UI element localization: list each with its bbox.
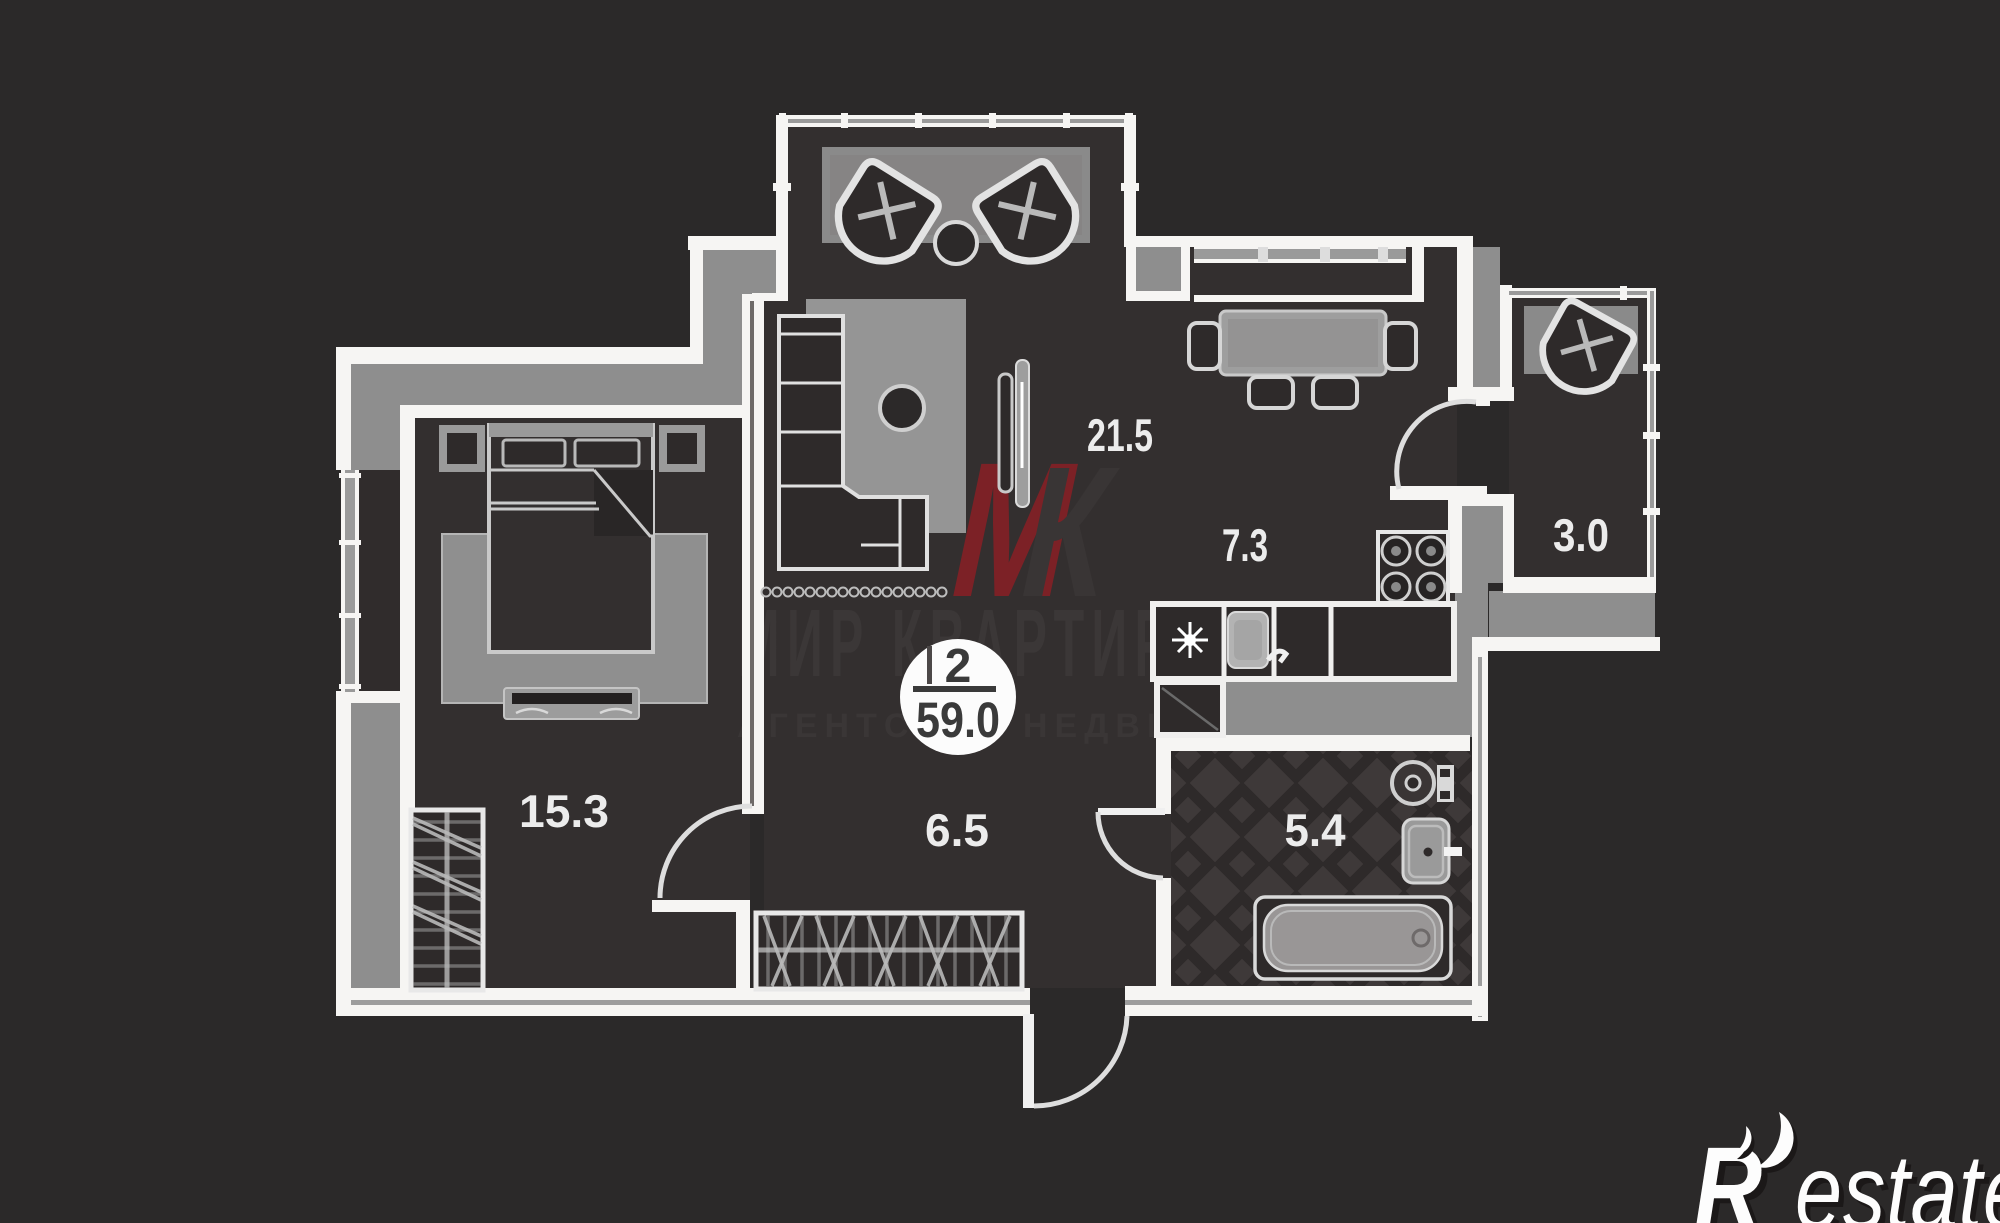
svg-text:59.0: 59.0 (916, 692, 1000, 748)
svg-text:7.3: 7.3 (1222, 519, 1268, 571)
svg-text:3.0: 3.0 (1553, 509, 1609, 561)
svg-text:15.3: 15.3 (519, 785, 609, 837)
svg-text:5.4: 5.4 (1285, 804, 1346, 856)
svg-text:21.5: 21.5 (1087, 409, 1153, 461)
svg-text:estate: estate (1795, 1133, 2000, 1223)
svg-text:6.5: 6.5 (925, 804, 989, 856)
svg-text:2: 2 (945, 640, 972, 693)
